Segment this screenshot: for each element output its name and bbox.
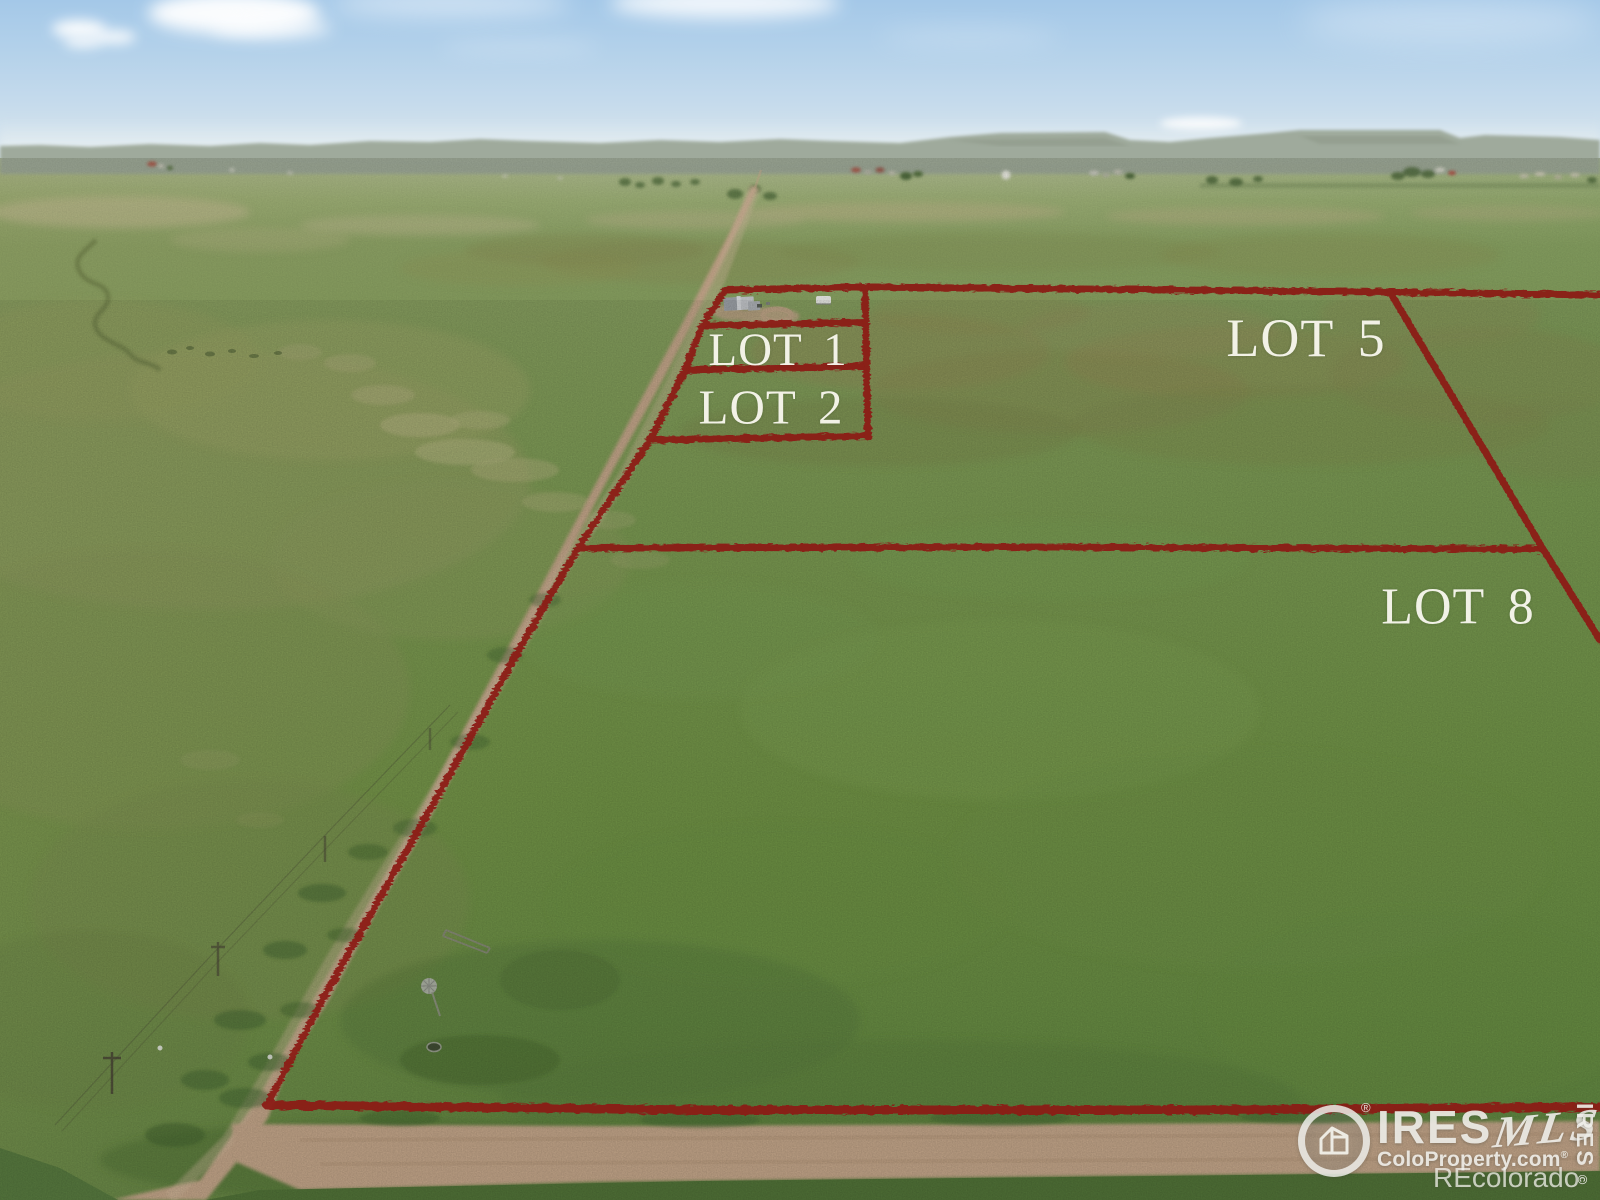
boundary-lot8-top	[578, 547, 1543, 549]
lot-8-label: LOT 8	[1381, 578, 1535, 637]
ires-logo-circle	[1298, 1105, 1370, 1177]
landscape-detail-layer	[0, 0, 1600, 1200]
mls-watermark: ® IRES MLS ColoProperty.com® REcolorado …	[1255, 1090, 1600, 1200]
lot-2-label: LOT 2	[699, 379, 844, 436]
aerial-lot-photo: LOT 1 LOT 2 LOT 5 LOT 8 ® IRES MLS ColoP…	[0, 0, 1600, 1200]
lot-5-label: LOT 5	[1226, 307, 1385, 369]
recolorado-text: REcolorado	[1433, 1164, 1579, 1192]
ires-brand-text: IRES	[1377, 1104, 1492, 1150]
vertical-ires-label: IRES	[1572, 1103, 1598, 1169]
copyright-mark: ©	[1575, 1175, 1590, 1185]
vertical-ires-text: IRES©	[1573, 1103, 1596, 1184]
registered-mark: ®	[1361, 1100, 1371, 1115]
boundary-lot2-bottom	[650, 436, 868, 440]
lot-1-label: LOT 1	[708, 323, 847, 377]
boundary-lot12-right	[865, 287, 868, 437]
house-icon	[1314, 1121, 1354, 1161]
site-registered-mark: ®	[1561, 1150, 1569, 1161]
